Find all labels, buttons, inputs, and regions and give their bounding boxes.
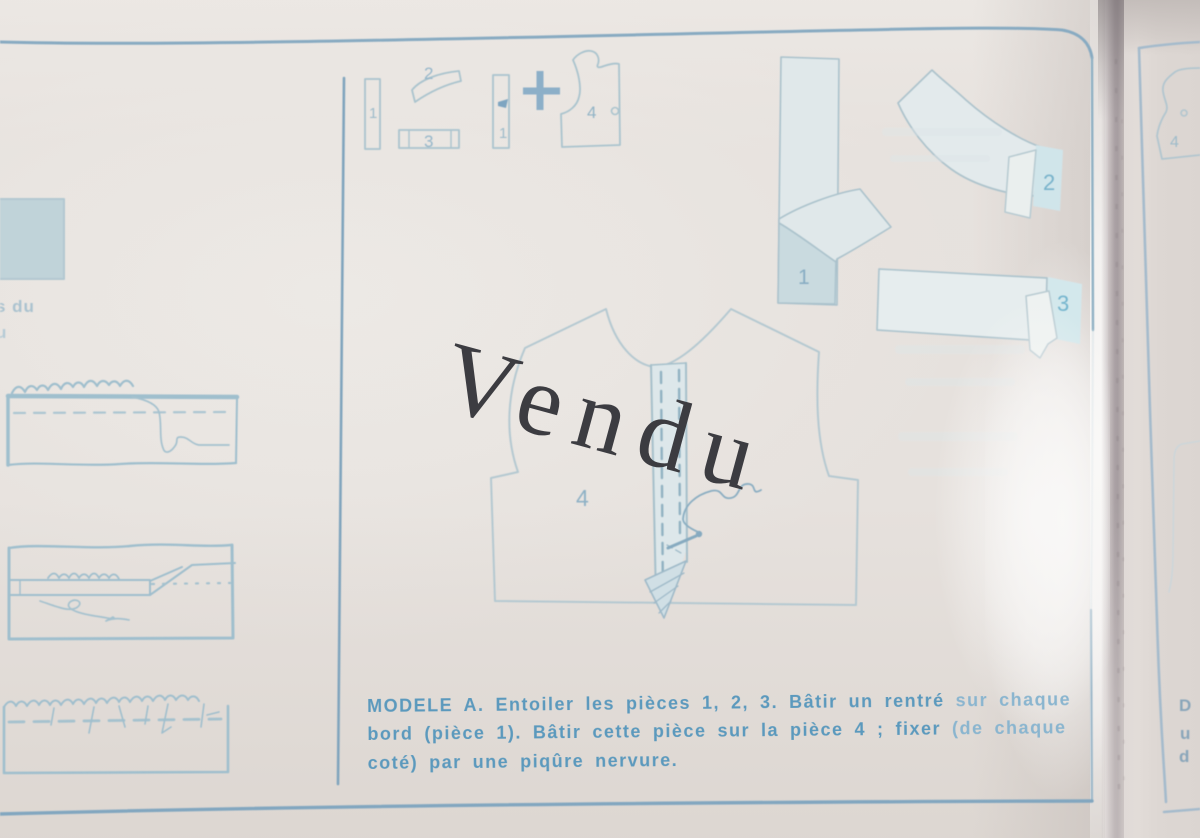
svg-text:2: 2 xyxy=(424,64,433,83)
svg-text:4: 4 xyxy=(1170,134,1179,151)
svg-text:1: 1 xyxy=(798,266,810,289)
svg-text:u: u xyxy=(1180,724,1190,743)
svg-text:D: D xyxy=(1179,696,1191,715)
svg-text:s du: s du xyxy=(0,297,35,316)
svg-text:d: d xyxy=(1179,747,1189,766)
svg-text:2: 2 xyxy=(1043,170,1055,195)
svg-text:4: 4 xyxy=(587,103,596,122)
svg-text:1: 1 xyxy=(369,105,377,122)
svg-text:1: 1 xyxy=(499,125,507,142)
svg-text:u: u xyxy=(0,323,6,342)
svg-text:3: 3 xyxy=(424,132,433,151)
